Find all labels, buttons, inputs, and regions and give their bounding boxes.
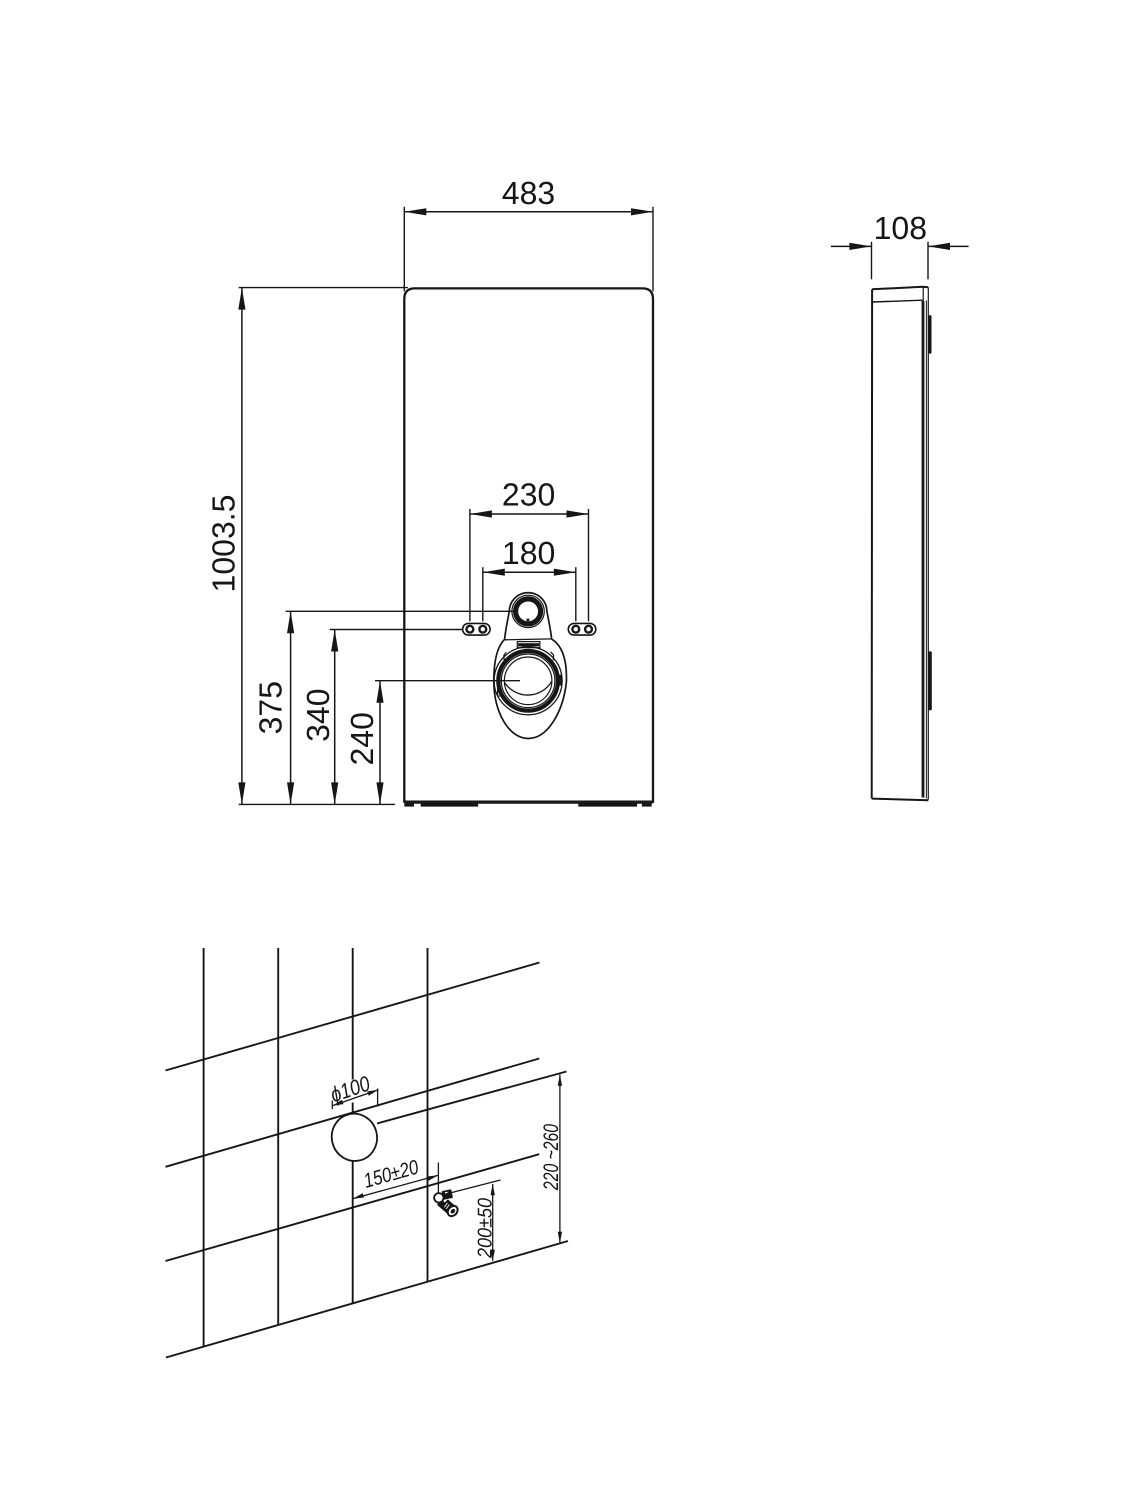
svg-text:340: 340	[300, 689, 336, 742]
svg-text:230: 230	[502, 477, 555, 513]
svg-text:108: 108	[874, 210, 927, 246]
svg-text:180: 180	[502, 535, 555, 571]
svg-text:1003.5: 1003.5	[206, 495, 242, 593]
svg-text:220 ~260: 220 ~260	[540, 1124, 563, 1191]
svg-text:200±50: 200±50	[475, 1198, 497, 1259]
svg-text:375: 375	[253, 681, 289, 734]
svg-text:240: 240	[344, 712, 380, 765]
svg-text:483: 483	[502, 175, 555, 211]
